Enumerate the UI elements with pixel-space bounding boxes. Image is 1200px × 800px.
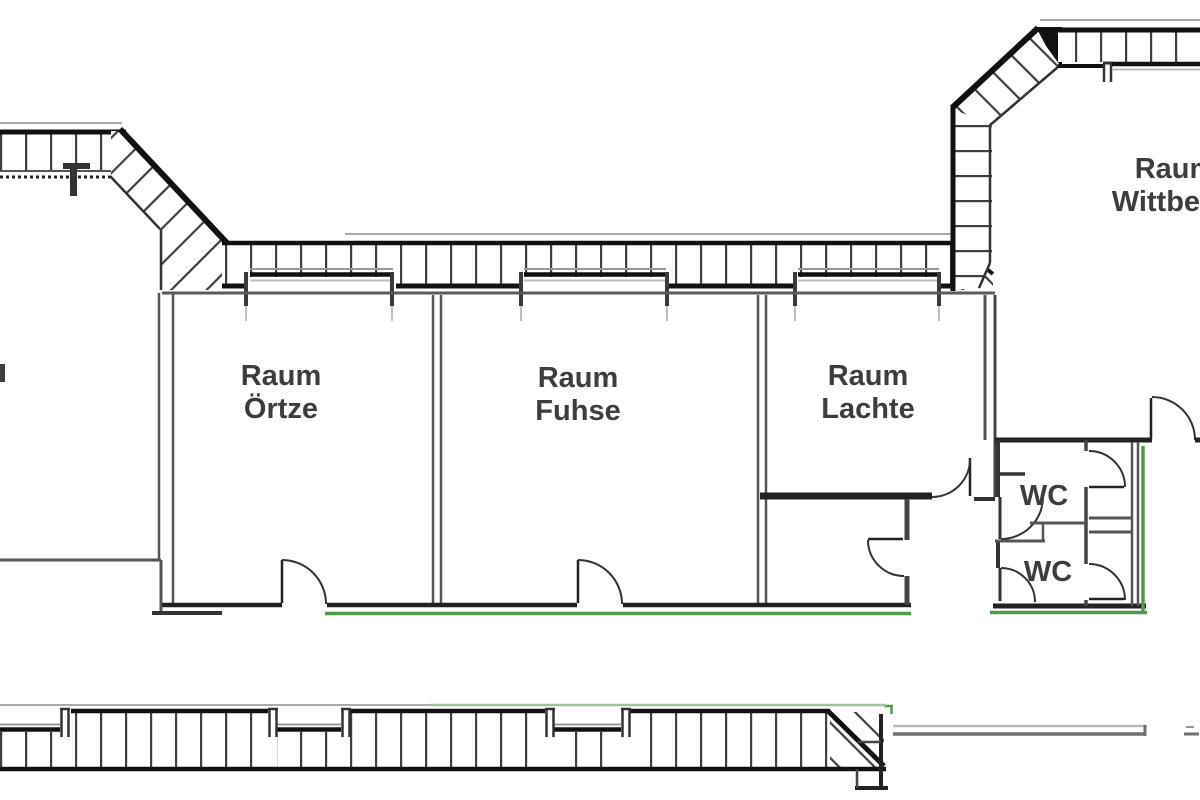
room-label-wc-upper: WC [1020,480,1068,512]
exterior-wall-band-bottom [0,705,1199,790]
room-label-lachte-line2: Lachte [821,393,914,425]
window-bottom-3 [554,725,621,730]
door-wc-lower-niche [1089,564,1125,600]
exterior-wall-band-top-right [952,20,1200,127]
wall-oertze-fuhse [433,295,441,603]
jamb-extensions-top [246,306,939,321]
window-bottom-1 [0,725,60,730]
exterior-wall-band-right-vertical [951,107,992,291]
room-label-fuhse-line1: Raum [538,362,619,394]
door-wittbeck [1151,397,1195,440]
exterior-wall-band-top [222,234,993,321]
door-wc-upper-niche [1089,451,1125,487]
interior-walls [0,293,995,613]
room-label-oertze-line2: Örtze [244,392,318,425]
exterior-wall-band-top-left [0,123,126,196]
room-label-wittbeck-line1: Raum [1135,153,1200,185]
room-label-lachte-line1: Raum [828,360,909,392]
exterior-wall-band-left-diagonal [110,129,227,290]
clipped-label-fragment [0,364,5,382]
wall-pier-top-left [63,163,90,169]
door-small-room [868,539,904,576]
door-fuhse [578,560,622,604]
floor-plan-drawing: Raum Örtze Raum Fuhse Raum Lachte Raum W… [0,0,1200,800]
room-label-wittbeck-line2: Wittbeck [1112,186,1200,218]
window-wittbeck [1112,64,1200,70]
terrace-edge-lines [893,725,1199,736]
floor-plan-page: Raum Örtze Raum Fuhse Raum Lachte Raum W… [0,0,1200,800]
room-label-fuhse-line2: Fuhse [535,395,620,427]
window-bottom-2 [277,725,341,730]
door-oertze [282,560,326,604]
room-label-wc-lower: WC [1024,556,1072,588]
door-lachte [932,458,970,497]
room-label-oertze-line1: Raum [241,360,322,392]
wall-fuhse-lachte [758,295,766,603]
